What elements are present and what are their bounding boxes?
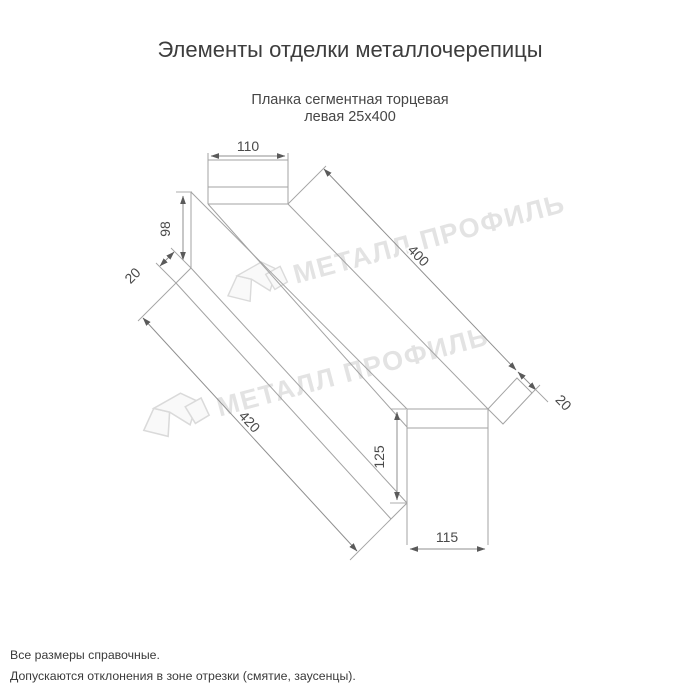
watermark-text: МЕТАЛЛ ПРОФИЛЬ [290, 188, 569, 290]
dimension-20-right-label: 20 [552, 391, 574, 413]
dimension-20-right: 20 [518, 372, 575, 414]
dimension-420: 420 [138, 283, 391, 560]
metall-profil-logo-icon [222, 257, 290, 307]
dimension-115: 115 [410, 529, 485, 549]
dimension-98-label: 98 [157, 221, 173, 237]
watermark-text: МЕТАЛЛ ПРОФИЛЬ [213, 321, 492, 423]
dimension-110: 110 [211, 138, 285, 156]
dimension-125: 125 [371, 409, 406, 503]
drawing-canvas: МЕТАЛЛ ПРОФИЛЬ МЕТАЛЛ ПРОФИЛЬ Элементы о… [0, 0, 700, 700]
page-title: Элементы отделки металлочерепицы [157, 37, 542, 62]
technical-drawing-page: МЕТАЛЛ ПРОФИЛЬ МЕТАЛЛ ПРОФИЛЬ Элементы о… [0, 0, 700, 700]
product-name-line2: левая 25х400 [304, 109, 396, 125]
footer-note-line1: Все размеры справочные. [10, 648, 160, 662]
dimension-98: 98 [157, 192, 192, 260]
dimension-20-left: 20 [121, 248, 191, 287]
dimension-115-label: 115 [436, 529, 459, 545]
watermark-lower: МЕТАЛЛ ПРОФИЛЬ [137, 312, 492, 442]
footer-note-line2: Допускаются отклонения в зоне отрезки (с… [10, 669, 356, 683]
dimension-110-label: 110 [237, 138, 260, 154]
watermark-upper: МЕТАЛЛ ПРОФИЛЬ [222, 182, 569, 307]
product-name-line1: Планка сегментная торцевая [251, 92, 448, 108]
dimension-20-left-label: 20 [121, 264, 143, 286]
dimension-125-label: 125 [371, 445, 387, 469]
metall-profil-logo-icon [137, 388, 212, 443]
